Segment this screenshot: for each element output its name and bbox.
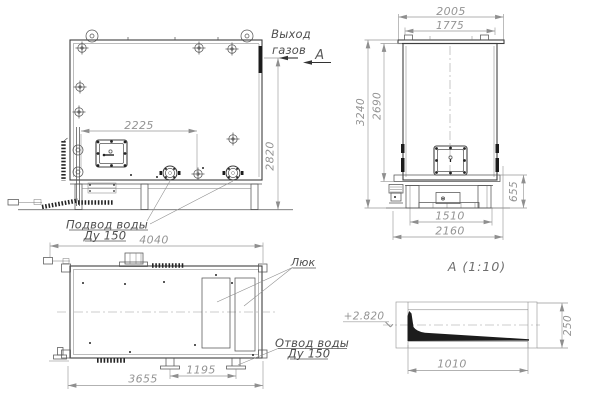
water-inlet-flange-right [223, 166, 244, 180]
dimension-1195: 1195 [170, 364, 236, 380]
fitting-boss-icon [227, 133, 240, 146]
side-view: 2005 1775 3240 2690 655 [355, 5, 527, 240]
fitting-boss-icon [226, 43, 239, 56]
svg-text:+2.820: +2.820 [344, 311, 385, 323]
lug-mark-left [405, 35, 413, 40]
dimension-3655: 3655 [68, 361, 263, 389]
level-mark: +2.820 [343, 311, 393, 328]
weld-wedge-profile [408, 311, 530, 341]
svg-text:1195: 1195 [186, 364, 216, 377]
side-valve-top [44, 258, 71, 265]
dimension-2690: 2690 [372, 44, 403, 182]
hatch-label: Люк [217, 256, 316, 306]
dimension-1775: 1775 [405, 20, 495, 35]
fitting-bosses [73, 42, 240, 181]
manhole-handle-icon [103, 150, 114, 156]
bolt-dots [82, 274, 254, 356]
fitting-boss-icon [192, 168, 205, 181]
fitting-boss-icon [73, 106, 86, 119]
svg-text:4040: 4040 [139, 234, 169, 247]
svg-text:Ду 150: Ду 150 [287, 347, 331, 361]
svg-text:2005: 2005 [436, 5, 466, 18]
svg-text:1010: 1010 [437, 358, 467, 371]
hatch-rect-1 [202, 278, 230, 348]
dimension-655: 655 [493, 175, 527, 208]
dimension-1010: 1010 [408, 342, 528, 374]
dimension-1510: 1510 [410, 209, 492, 226]
dimension-250: 250 [537, 303, 574, 348]
svg-text:газов: газов [272, 43, 306, 57]
svg-text:2225: 2225 [124, 119, 154, 132]
dimension-2160: 2160 [393, 166, 503, 240]
svg-text:2820: 2820 [264, 141, 277, 171]
svg-text:А: А [314, 48, 324, 63]
lug-mark-right [481, 35, 489, 40]
svg-text:Люк: Люк [290, 256, 316, 269]
dimension-3240: 3240 [355, 40, 397, 208]
water-outlet-stub-left [161, 358, 180, 369]
fitting-boss-icon [74, 81, 87, 94]
burner-fitting [389, 185, 403, 204]
manhole-handle-icon [449, 156, 452, 162]
svg-text:3240: 3240 [355, 98, 367, 126]
gas-outlet-annotation: Выход газов [271, 27, 311, 60]
side-valve-bottom [49, 348, 69, 362]
section-title: А (1:10) [447, 259, 506, 274]
chimney-flange [120, 253, 148, 267]
boiler-technical-drawing: 2225 2820 Выход газов А [0, 0, 600, 400]
downcomer-pipe [73, 127, 83, 206]
manhole-side [434, 146, 467, 175]
front-view: 2225 2820 Выход газов А [8, 27, 331, 243]
water-outlet-stub-right [227, 358, 246, 369]
section-cut-arrow: А [303, 48, 331, 65]
svg-text:1510: 1510 [435, 210, 465, 223]
dimension-4040: 4040 [50, 234, 263, 264]
svg-text:1775: 1775 [436, 20, 464, 32]
gas-outlet-stub [259, 46, 263, 73]
svg-text:655: 655 [508, 181, 520, 202]
svg-text:2160: 2160 [435, 225, 465, 238]
side-fitting-left [8, 200, 42, 206]
support-frame-front [70, 183, 262, 210]
section-a-view: А (1:10) +2.820 250 1010 [343, 259, 574, 374]
svg-text:2690: 2690 [372, 92, 384, 120]
manhole-front [96, 140, 127, 167]
svg-text:Ду 150: Ду 150 [83, 229, 127, 243]
boiler-shell-front [70, 40, 262, 180]
svg-text:250: 250 [562, 315, 574, 336]
svg-text:Выход: Выход [271, 27, 311, 41]
drawing-canvas: 2225 2820 Выход газов А [0, 0, 600, 400]
dimension-2820: 2820 [264, 58, 282, 210]
water-inlet-flange-left [160, 166, 181, 180]
svg-text:3655: 3655 [128, 373, 158, 386]
plan-view: 4040 3655 1195 Люк Отвод воды Ду 150 [44, 234, 350, 390]
